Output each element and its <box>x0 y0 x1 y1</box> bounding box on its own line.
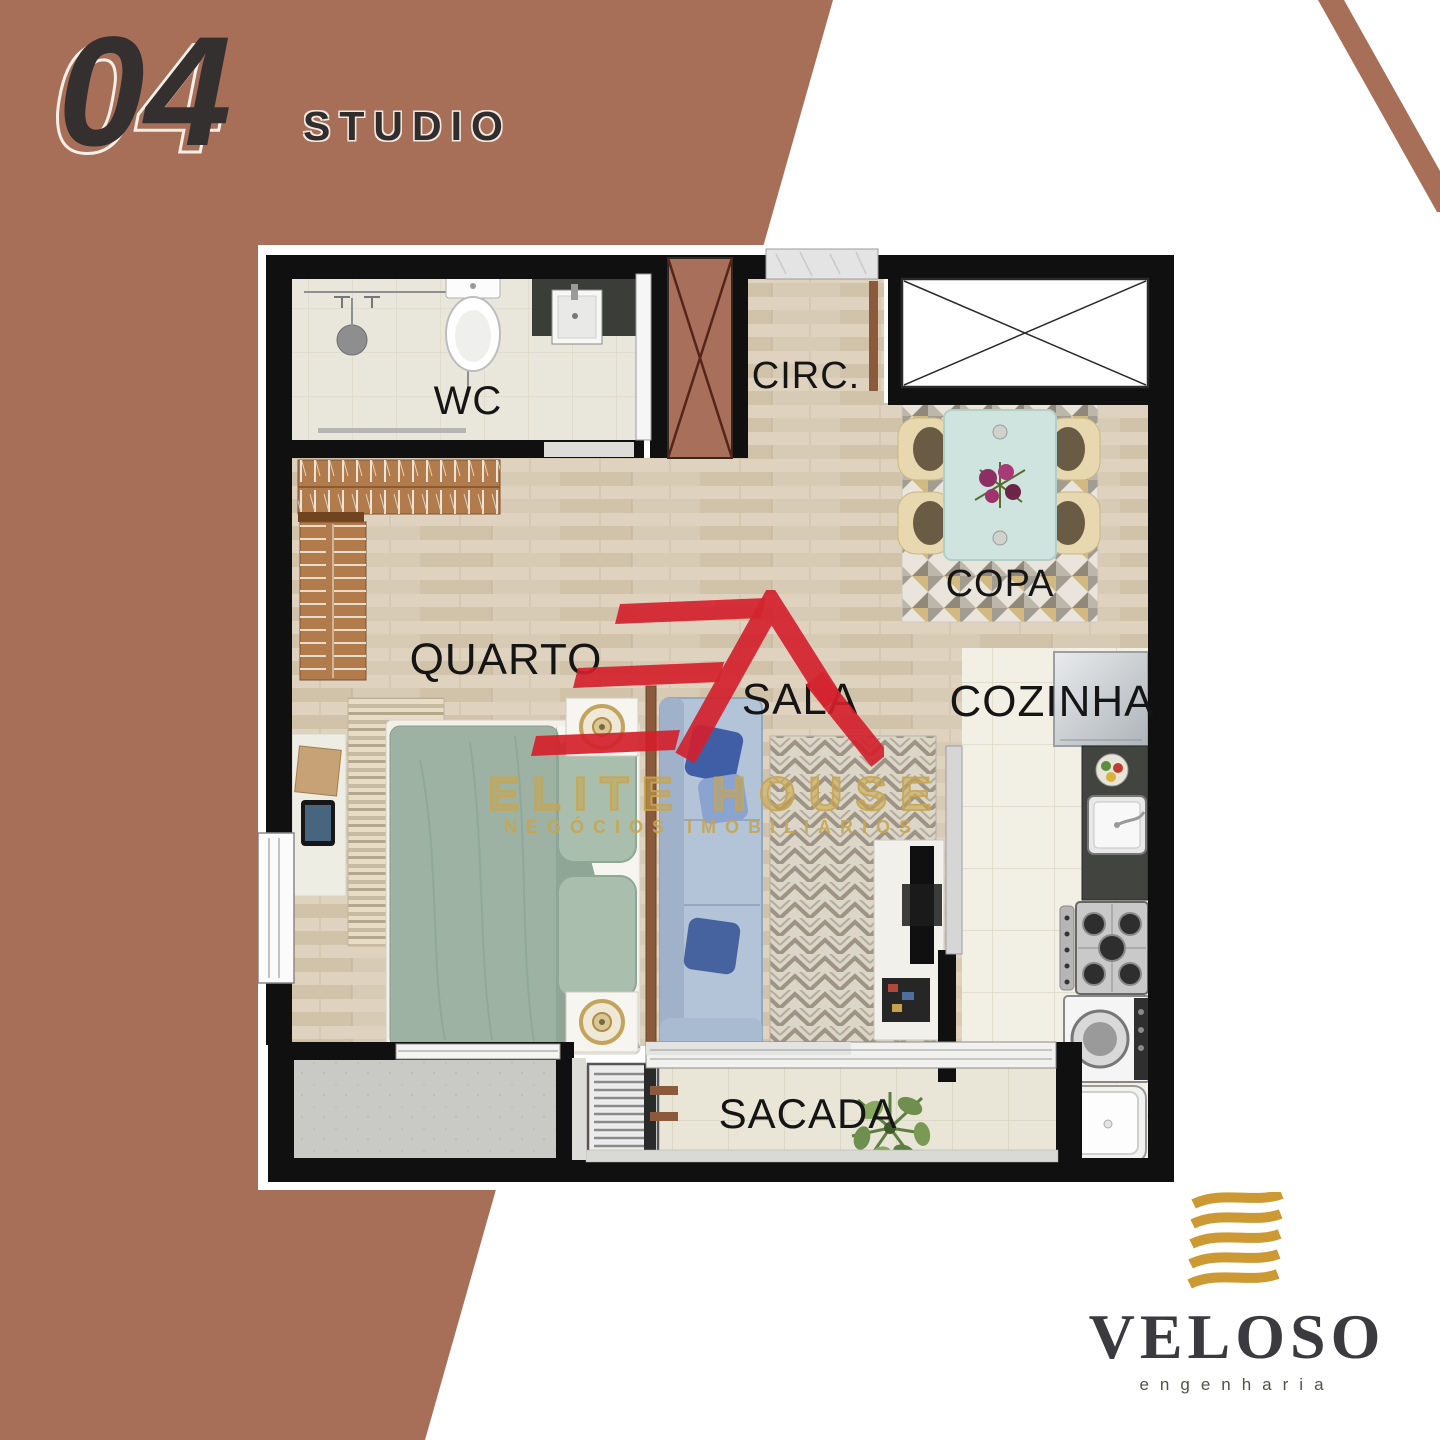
wc-faucet <box>571 284 578 300</box>
table-cup <box>993 425 1007 439</box>
entry-door-leaf <box>869 281 878 391</box>
unit-number: 04 04 <box>58 14 232 170</box>
table-cup <box>993 531 1007 545</box>
wc-door-jamb <box>636 274 651 440</box>
marble-strip <box>572 1058 586 1160</box>
veloso-waves-icon <box>1178 1192 1296 1292</box>
label-copa: COPA <box>946 563 1055 605</box>
balcony-rail-sill <box>586 1150 1058 1162</box>
elite-house-logo-icon <box>528 590 884 775</box>
burner <box>1119 913 1141 935</box>
watermark-brand: ELITE HOUSE <box>488 766 944 821</box>
label-wc: WC <box>434 379 503 423</box>
tub-drain <box>1104 1120 1112 1128</box>
developer-name: VELOSO <box>1089 1305 1386 1369</box>
pillow <box>558 876 636 998</box>
burner <box>1083 963 1105 985</box>
wc-threshold <box>544 442 634 457</box>
burner <box>1083 913 1105 935</box>
desk-tray <box>295 746 342 796</box>
bedroom-window <box>258 833 294 983</box>
sofa-pillow <box>683 917 742 976</box>
closet-shelf-edge <box>298 512 364 522</box>
developer-logo: VELOSO engenharia <box>1089 1192 1386 1395</box>
watermark-tagline: NEGÓCIOS IMOBILIÁRIOS <box>504 817 920 838</box>
kitchen-half-wall <box>946 746 962 954</box>
burner <box>1119 963 1141 985</box>
tv-mount <box>902 884 942 926</box>
burner <box>1099 935 1125 961</box>
developer-tagline: engenharia <box>1089 1375 1386 1395</box>
label-sacada: SACADA <box>719 1090 898 1137</box>
unit-type-label: STUDIO <box>303 103 512 150</box>
balcony-bracket <box>650 1086 678 1095</box>
label-cozinha: COZINHA <box>950 677 1155 726</box>
concrete-area <box>292 1058 558 1160</box>
shower-drain <box>318 428 466 433</box>
balcony-bracket <box>650 1112 678 1121</box>
label-circ: CIRC. <box>752 355 860 397</box>
